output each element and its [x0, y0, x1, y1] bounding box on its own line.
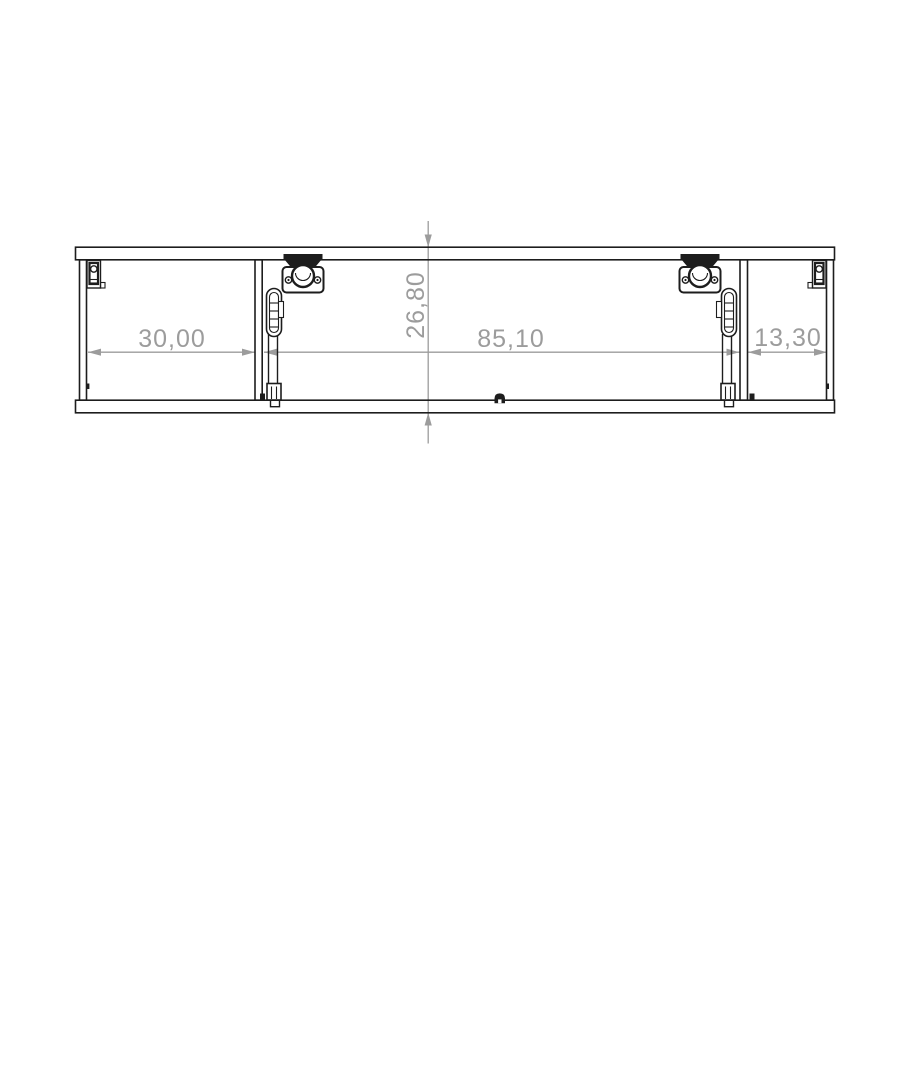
arrow-right-icon [727, 349, 740, 356]
strut-tab [717, 302, 722, 318]
dimension-center-width: 85,10 [264, 325, 740, 356]
arrow-down-icon [425, 235, 432, 248]
right-gas-strut [717, 289, 755, 407]
dim-left-width-label: 30,00 [138, 325, 206, 353]
dimension-height: 26,80 [402, 221, 432, 444]
left-wall-bracket [87, 261, 105, 289]
cabinet-drawing: 26,80 30,00 85,10 13,30 [0, 0, 913, 1080]
cam-mark [750, 394, 755, 401]
bottom-panel [76, 400, 835, 413]
right-hinge [680, 254, 721, 293]
strut-foot [721, 384, 735, 401]
hinge-cup [689, 265, 711, 287]
left-hinge [283, 254, 324, 293]
dimension-right-width: 13,30 [748, 324, 827, 356]
strut-tab [279, 302, 284, 318]
bracket-hole-icon [816, 266, 822, 272]
strut-body [722, 289, 737, 337]
strut-bottom-mount [725, 400, 734, 407]
left-divider-panel [255, 260, 262, 400]
arrow-up-icon [425, 413, 432, 426]
left-side-panel [80, 260, 87, 400]
left-wall-pin-mark [87, 384, 90, 390]
dimension-left-width: 30,00 [88, 325, 255, 356]
dim-height-label: 26,80 [402, 271, 430, 339]
right-side-panel [827, 260, 834, 400]
cam-mark [260, 394, 265, 401]
dim-right-width-label: 13,30 [754, 324, 822, 352]
arrow-left-icon [88, 349, 101, 356]
strut-bottom-mount [271, 400, 280, 407]
bracket-hole-icon [91, 266, 97, 272]
strut-foot [267, 384, 281, 401]
cable-grommet-icon [495, 393, 506, 403]
dim-center-width-label: 85,10 [477, 325, 545, 353]
left-gas-strut [260, 289, 284, 407]
top-panel [76, 247, 835, 260]
right-divider-panel [740, 260, 748, 400]
arrow-left-icon [264, 349, 277, 356]
technical-drawing-canvas: 26,80 30,00 85,10 13,30 [0, 0, 913, 1080]
arrow-right-icon [242, 349, 255, 356]
right-wall-bracket [808, 261, 826, 289]
right-wall-pin-mark [826, 384, 829, 390]
hinge-cup [292, 265, 314, 287]
